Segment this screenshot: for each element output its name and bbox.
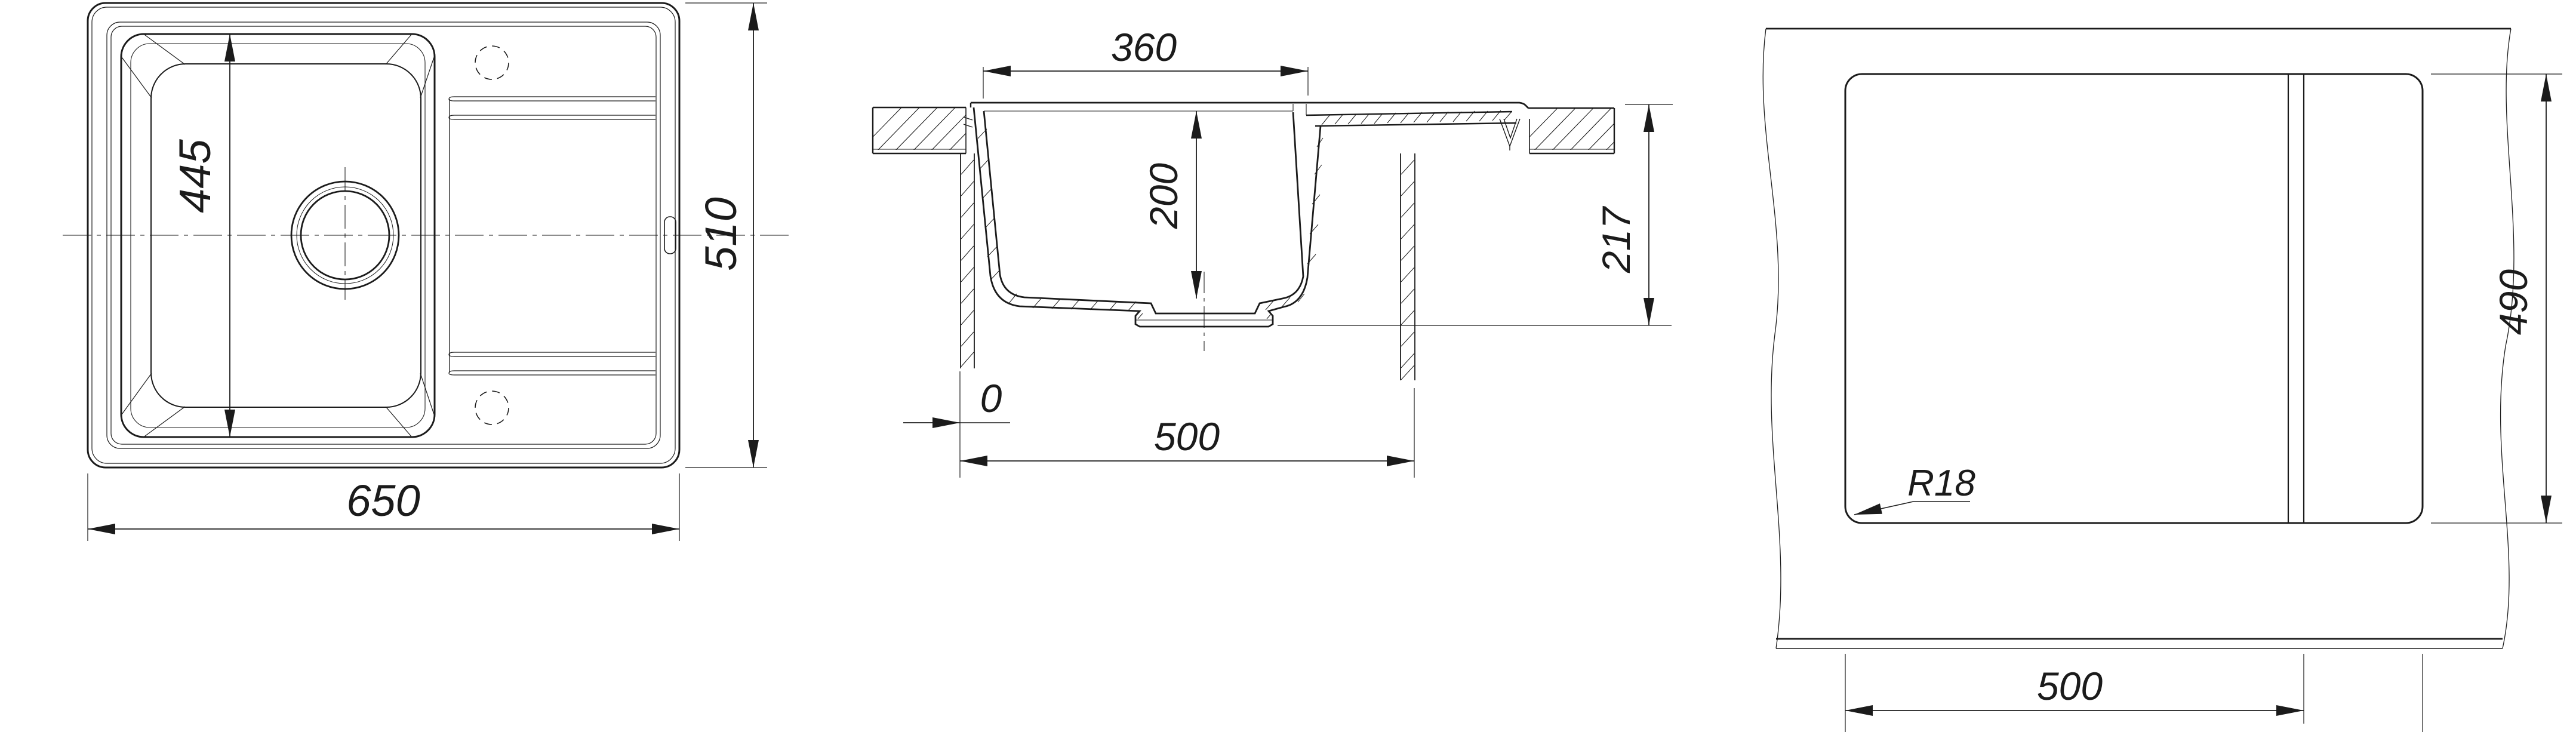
dim-500-cabinet-label: 500: [1154, 414, 1220, 459]
dim-0-label: 0: [980, 376, 1002, 420]
dim-630: [1845, 654, 2423, 732]
tap-hole-bottom: [475, 391, 509, 425]
counter-right: [1516, 106, 1649, 153]
dim-510-label: 510: [696, 197, 746, 270]
top-view: [63, 3, 791, 541]
drainboard-ridge-bottom: [449, 352, 655, 375]
dim-490-label: 490: [2491, 269, 2535, 335]
dim-217-label: 217: [1594, 206, 1638, 273]
counter-left: [860, 106, 992, 153]
break-line-left: [1763, 29, 1781, 648]
sink-technical-drawing: 445 650 510 360 200 217 0 500 500 630 49…: [0, 0, 2576, 732]
cabinet-wall-right: [1401, 153, 1415, 380]
cabinet-wall-left-hatch: [961, 160, 974, 367]
divider-ridge-ticks: [1293, 104, 1306, 115]
counter-left-hatch: [860, 106, 992, 150]
cabinet-wall-right-hatch: [1401, 160, 1414, 380]
dim-200-label: 200: [1141, 163, 1186, 229]
cutout-rect: [1845, 74, 2423, 523]
radius-label: R18: [1907, 463, 1975, 504]
drainboard-section: [1306, 110, 1516, 126]
mounting-clip: [964, 117, 972, 127]
cabinet-wall-left: [961, 153, 974, 368]
dim-360-label: 360: [1111, 25, 1177, 69]
drawing-canvas: 445 650 510 360 200 217 0 500 500 630 49…: [0, 0, 2576, 732]
rim-top-line: [971, 103, 1528, 108]
break-line-right: [2501, 29, 2514, 648]
dim-360: [983, 67, 1308, 99]
dim-650-label: 650: [346, 476, 420, 525]
counter-right-hatch: [1516, 106, 1649, 150]
dimension-labels: 445 650 510 360 200 217 0 500 500 630 49…: [170, 25, 2535, 732]
dim-500-cutout-label: 500: [2037, 664, 2103, 708]
cutout-view: [1763, 29, 2562, 732]
drainboard-ridge-top: [449, 97, 655, 119]
dim-445-label: 445: [170, 139, 220, 213]
tap-hole-top: [475, 46, 509, 79]
